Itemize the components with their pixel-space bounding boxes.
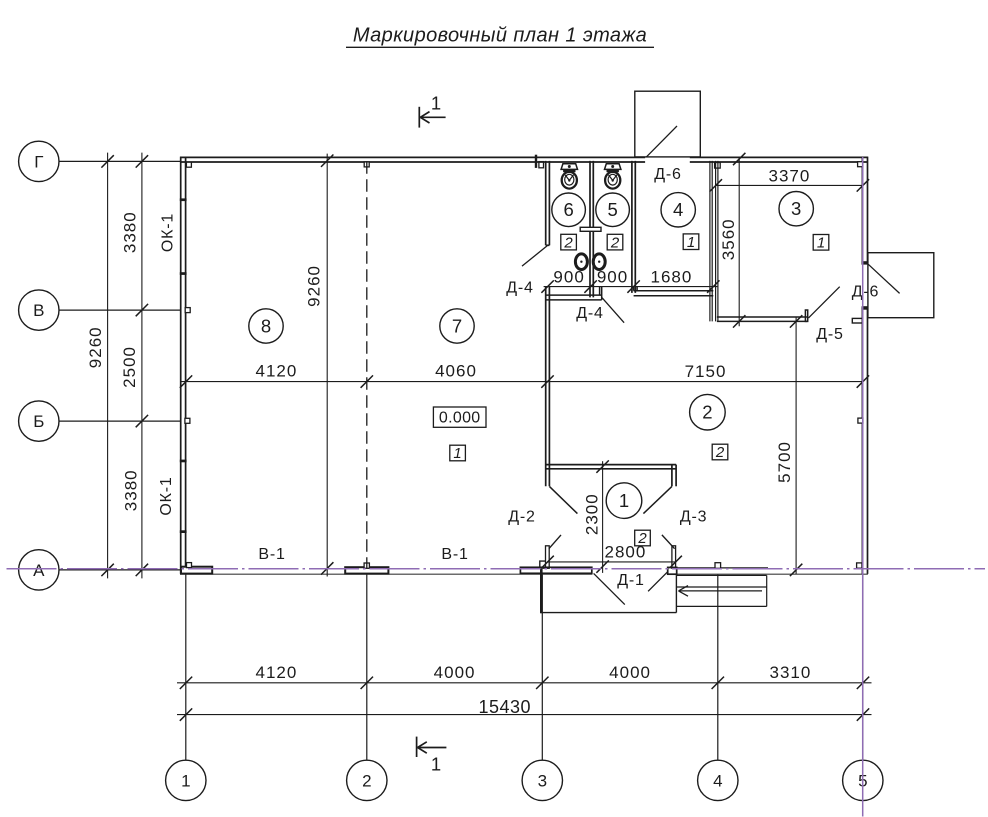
svg-text:1: 1: [619, 490, 629, 511]
svg-text:2500: 2500: [120, 346, 139, 388]
svg-text:2: 2: [702, 402, 712, 423]
svg-text:1680: 1680: [650, 268, 692, 287]
svg-text:ОК-1: ОК-1: [160, 213, 177, 252]
svg-text:2: 2: [563, 234, 573, 251]
svg-text:4120: 4120: [255, 361, 297, 380]
svg-text:3370: 3370: [768, 166, 810, 185]
svg-text:Д-6: Д-6: [852, 284, 879, 301]
svg-text:3560: 3560: [719, 218, 738, 260]
svg-text:3: 3: [538, 771, 547, 790]
svg-text:15430: 15430: [479, 697, 532, 717]
svg-text:ОК-1: ОК-1: [158, 476, 175, 515]
svg-text:0.000: 0.000: [439, 410, 481, 427]
svg-text:4: 4: [673, 199, 683, 220]
svg-text:3310: 3310: [769, 663, 811, 682]
svg-text:900: 900: [597, 268, 628, 287]
svg-text:3: 3: [791, 198, 801, 219]
svg-text:6: 6: [563, 199, 573, 220]
svg-text:3380: 3380: [121, 469, 140, 511]
svg-text:1: 1: [453, 445, 461, 462]
svg-text:1: 1: [687, 234, 695, 251]
svg-text:900: 900: [553, 268, 584, 287]
svg-text:7: 7: [452, 315, 462, 336]
svg-text:5700: 5700: [775, 441, 794, 483]
svg-text:Д-1: Д-1: [617, 572, 644, 589]
svg-text:В-1: В-1: [258, 546, 285, 563]
svg-text:4060: 4060: [435, 361, 477, 380]
svg-text:Д-3: Д-3: [680, 509, 707, 526]
svg-text:2: 2: [715, 444, 725, 461]
svg-text:4: 4: [713, 771, 722, 790]
svg-text:4120: 4120: [255, 663, 297, 682]
svg-text:2800: 2800: [604, 543, 646, 562]
svg-text:А: А: [33, 561, 45, 580]
svg-text:Д-4: Д-4: [576, 305, 603, 322]
svg-text:1: 1: [181, 771, 190, 790]
svg-text:8: 8: [261, 315, 271, 336]
svg-text:9260: 9260: [86, 326, 105, 368]
svg-text:В: В: [33, 301, 44, 320]
svg-text:4000: 4000: [434, 663, 476, 682]
svg-text:Д-4: Д-4: [506, 279, 533, 296]
svg-text:Д-6: Д-6: [654, 166, 681, 183]
svg-text:4000: 4000: [609, 663, 651, 682]
svg-text:1: 1: [431, 93, 441, 114]
svg-text:1: 1: [817, 235, 825, 252]
svg-text:2300: 2300: [583, 493, 602, 535]
svg-text:Д-5: Д-5: [816, 326, 843, 343]
svg-text:Д-2: Д-2: [508, 509, 535, 526]
svg-text:9260: 9260: [305, 265, 324, 307]
svg-text:3380: 3380: [121, 211, 140, 253]
svg-text:Б: Б: [33, 412, 44, 431]
svg-text:1: 1: [431, 754, 441, 775]
svg-text:Маркировочный план 1 этажа: Маркировочный план 1 этажа: [353, 25, 647, 47]
svg-text:В-1: В-1: [441, 546, 468, 563]
svg-text:Г: Г: [34, 152, 43, 171]
svg-text:5: 5: [607, 199, 617, 220]
svg-text:7150: 7150: [685, 362, 727, 381]
svg-text:2: 2: [362, 771, 371, 790]
svg-text:2: 2: [610, 234, 620, 251]
